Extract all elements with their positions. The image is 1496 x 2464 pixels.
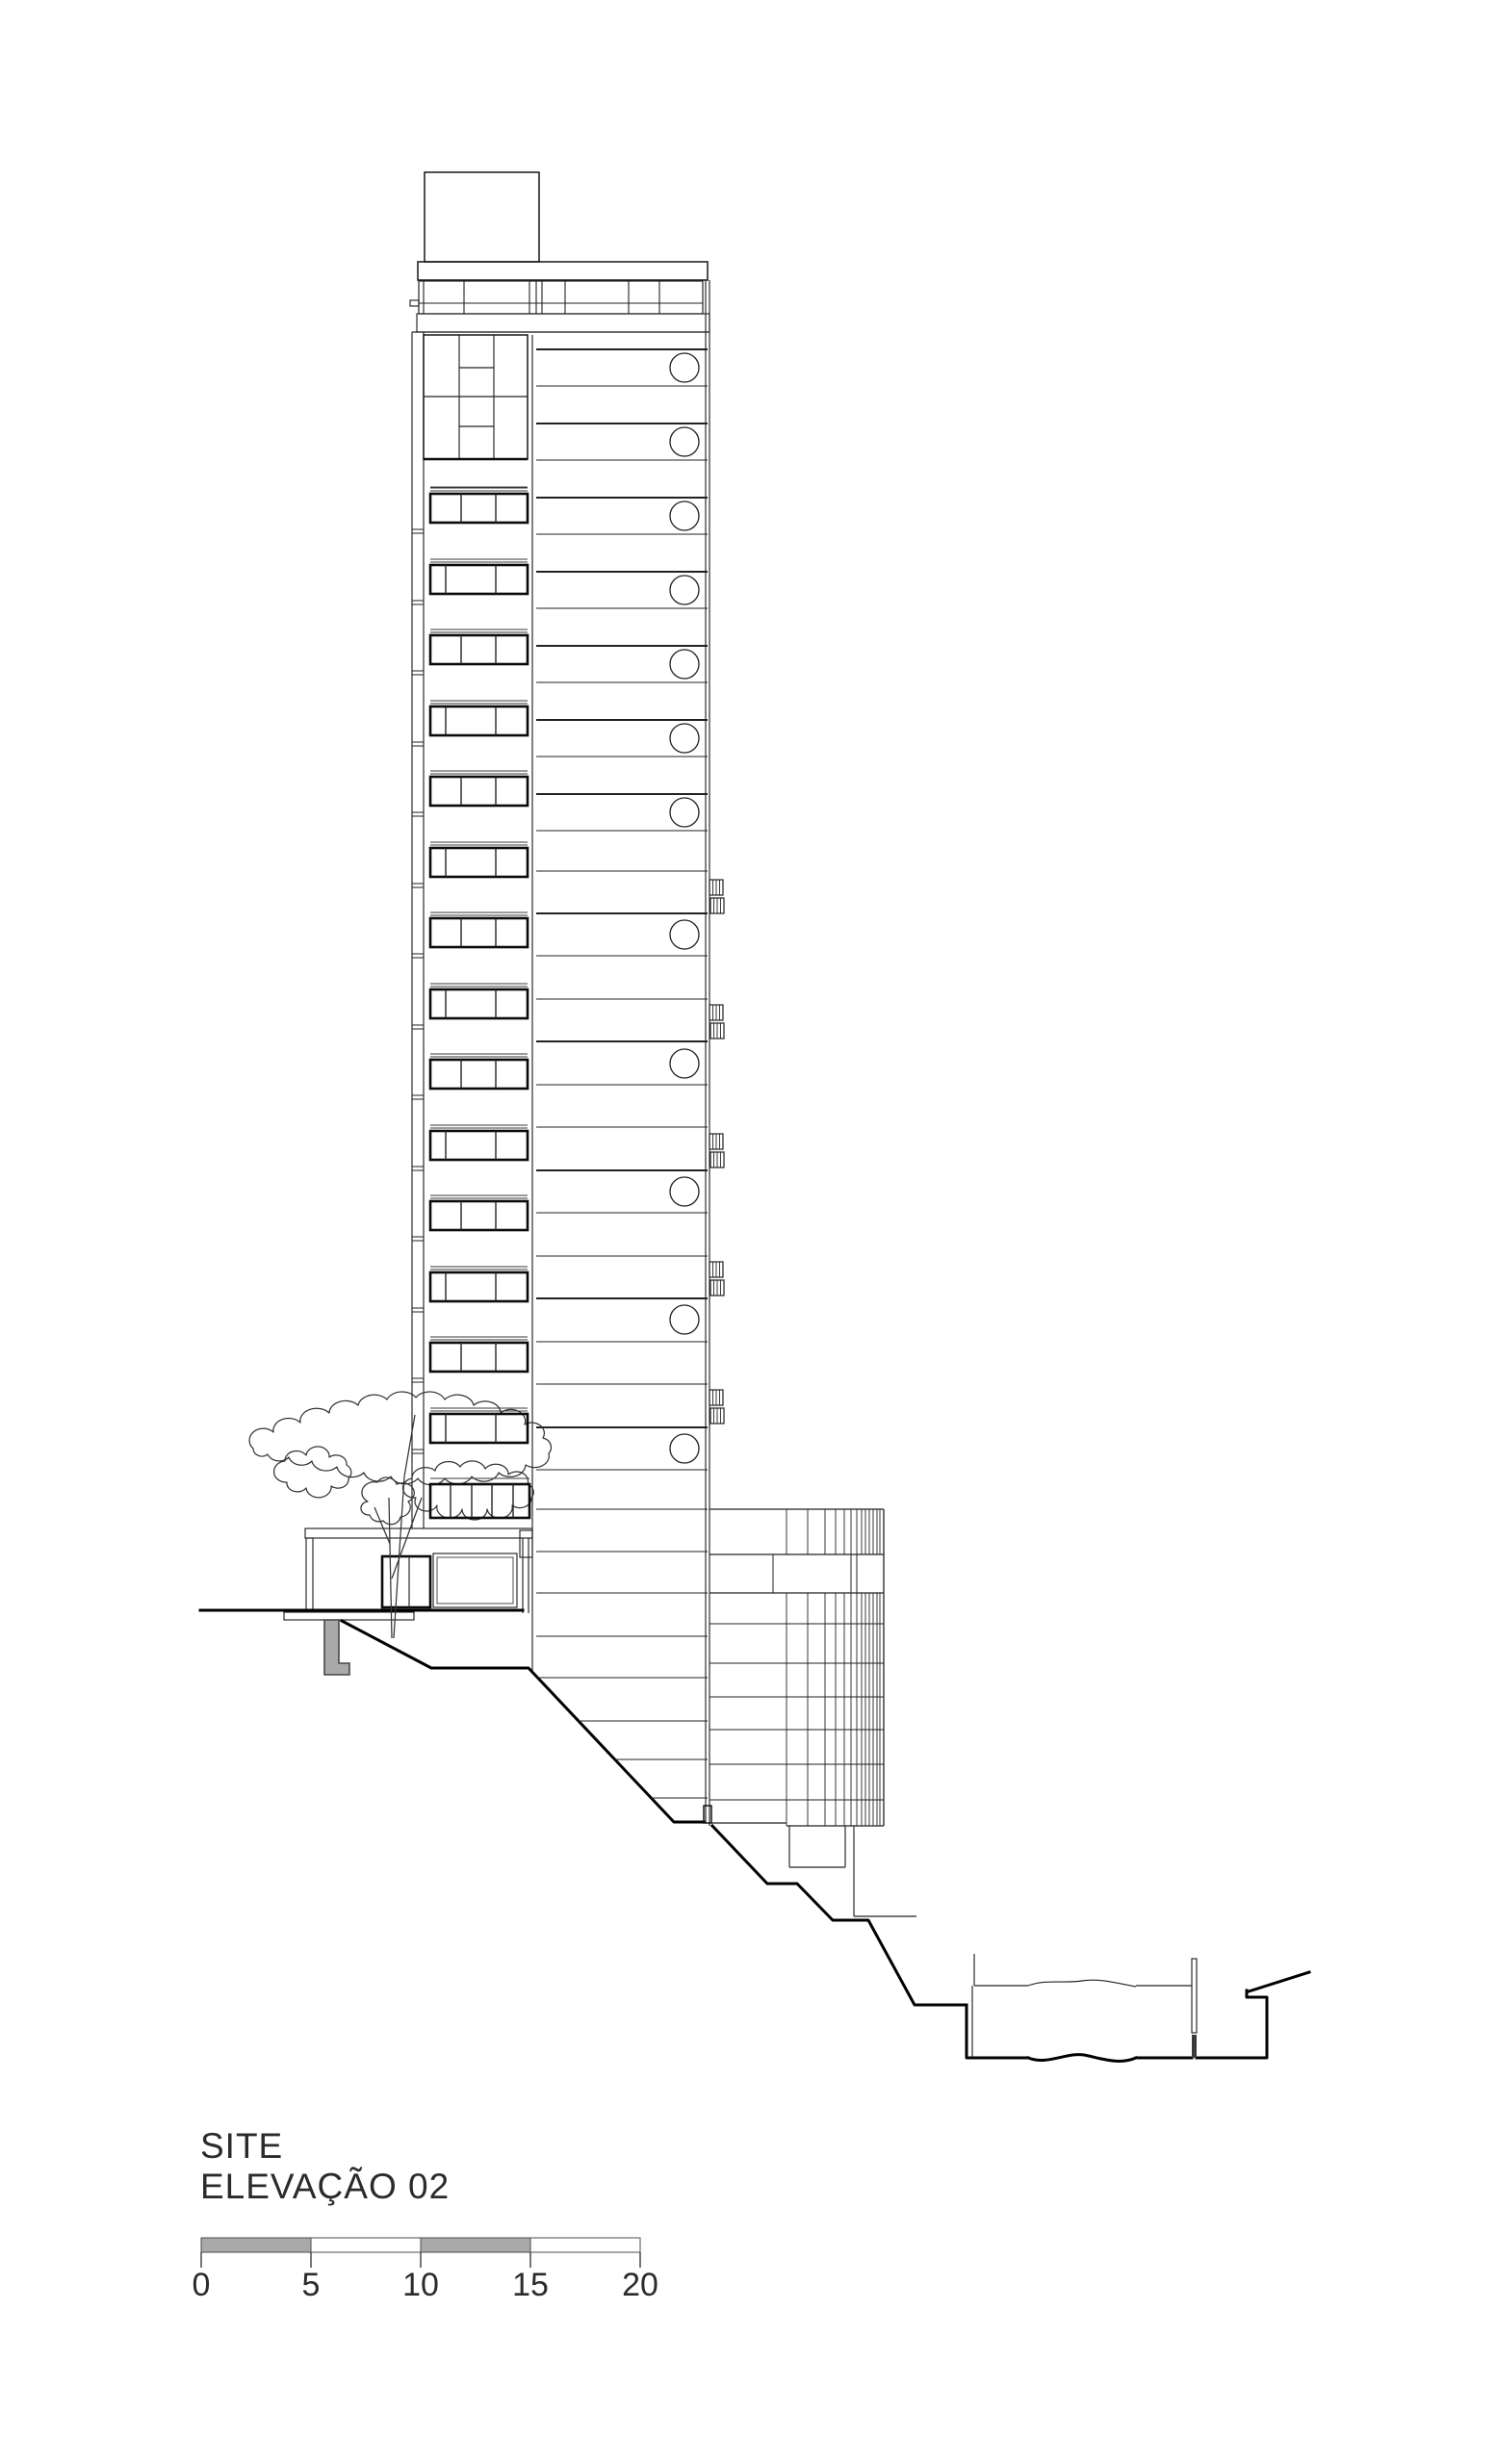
terrain-profile bbox=[342, 1621, 1309, 2061]
retaining-wall-gray bbox=[324, 1620, 349, 1675]
window-circle bbox=[670, 353, 699, 382]
scale-bar: 05101520 bbox=[193, 2238, 658, 2303]
slab-edge-tick bbox=[412, 1167, 424, 1170]
railing-left-stub bbox=[410, 300, 419, 306]
slab-edge-tick bbox=[412, 1025, 424, 1029]
window-strip-frame bbox=[430, 1131, 528, 1160]
slab-edge-tick bbox=[412, 671, 424, 675]
scale-label: 10 bbox=[402, 2267, 439, 2303]
slab-edge-tick bbox=[412, 954, 424, 958]
window-circle bbox=[670, 427, 699, 456]
scale-label: 20 bbox=[622, 2267, 658, 2303]
podium-window-small bbox=[382, 1556, 430, 1607]
drawing-title-line1: SITE bbox=[200, 2126, 283, 2166]
window-strip-frame bbox=[430, 706, 528, 735]
right-ground-slope bbox=[1249, 1972, 1309, 1991]
window-strip-frame bbox=[430, 1272, 528, 1301]
bay-window-strips bbox=[412, 488, 529, 1518]
balcony-hatch-markers bbox=[709, 880, 724, 1424]
podium-left-wall bbox=[306, 1538, 313, 1610]
scale-segment bbox=[530, 2238, 640, 2252]
window-strip-frame bbox=[430, 1484, 529, 1518]
slab-edge-tick bbox=[412, 812, 424, 816]
annex-building bbox=[709, 1509, 884, 1826]
water-channel-top bbox=[972, 1954, 1192, 2058]
site-elevation-drawing: 05101520 SITE ELEVAÇÃO 02 bbox=[0, 0, 1496, 2464]
window-circle bbox=[670, 1049, 699, 1078]
scale-segment bbox=[201, 2238, 311, 2252]
tree-canopy-right-lobe bbox=[403, 1461, 534, 1520]
scale-label: 15 bbox=[512, 2267, 549, 2303]
window-circle bbox=[670, 724, 699, 753]
podium-roof-endcap bbox=[520, 1530, 532, 1557]
annex-foundation-steps bbox=[789, 1826, 916, 1916]
penthouse-box bbox=[425, 172, 539, 262]
window-strip-frame bbox=[430, 1060, 528, 1089]
facade-window-circles bbox=[670, 353, 699, 1463]
podium-window-large bbox=[433, 1553, 517, 1607]
slab-edge-tick bbox=[412, 1237, 424, 1241]
fence-post bbox=[1192, 1959, 1197, 2033]
window-strip-frame bbox=[430, 1201, 528, 1230]
window-circle bbox=[670, 1177, 699, 1206]
window-strip-frame bbox=[430, 848, 528, 877]
window-circle bbox=[670, 798, 699, 827]
title-block: SITE ELEVAÇÃO 02 bbox=[200, 2126, 450, 2206]
slab-edge-tick bbox=[412, 742, 424, 746]
window-strip-frame bbox=[430, 635, 528, 664]
slab-edge-tick bbox=[412, 529, 424, 533]
tower-top bbox=[410, 172, 709, 332]
slab-edge-tick bbox=[412, 1378, 424, 1382]
window-circle bbox=[670, 1305, 699, 1334]
slab-edge-tick bbox=[412, 884, 424, 887]
tower-upper-grid bbox=[424, 335, 528, 491]
window-strip-frame bbox=[430, 1414, 528, 1443]
fence-post-base bbox=[1192, 2035, 1197, 2058]
window-circle bbox=[670, 576, 699, 604]
scale-segment bbox=[311, 2238, 421, 2252]
scale-label: 5 bbox=[302, 2267, 321, 2303]
window-circle bbox=[670, 920, 699, 949]
slab-edge-tick bbox=[412, 1095, 424, 1099]
parapet-band bbox=[417, 314, 709, 332]
window-strip-frame bbox=[430, 918, 528, 947]
slab-edge-tick bbox=[412, 601, 424, 604]
tree bbox=[249, 1392, 551, 1638]
window-strip-frame bbox=[430, 565, 528, 594]
window-strip-frame bbox=[430, 989, 528, 1018]
window-strip-frame bbox=[430, 777, 528, 806]
tower-shell bbox=[412, 280, 709, 1826]
stream-bottom-wavy bbox=[1028, 2055, 1136, 2062]
tree-canopy-main bbox=[249, 1392, 551, 1485]
window-strip-frame bbox=[430, 1343, 528, 1372]
window-circle bbox=[670, 501, 699, 530]
scale-segment bbox=[421, 2238, 530, 2252]
basement-door bbox=[704, 1806, 711, 1823]
ground-podium bbox=[200, 1528, 532, 1675]
scale-label: 0 bbox=[193, 2267, 211, 2303]
drawing-title-line2: ELEVAÇÃO 02 bbox=[200, 2167, 450, 2206]
window-circle bbox=[670, 650, 699, 679]
window-strip-frame bbox=[430, 494, 528, 523]
roof-slab bbox=[418, 262, 708, 280]
slab-edge-tick bbox=[412, 1450, 424, 1453]
railing-frame bbox=[419, 281, 703, 314]
window-circle bbox=[670, 1434, 699, 1463]
tower-floor-lines bbox=[536, 349, 708, 1798]
podium-roof-slab bbox=[305, 1528, 532, 1538]
slab-edge-tick bbox=[412, 1308, 424, 1312]
roof-railing bbox=[419, 281, 703, 314]
